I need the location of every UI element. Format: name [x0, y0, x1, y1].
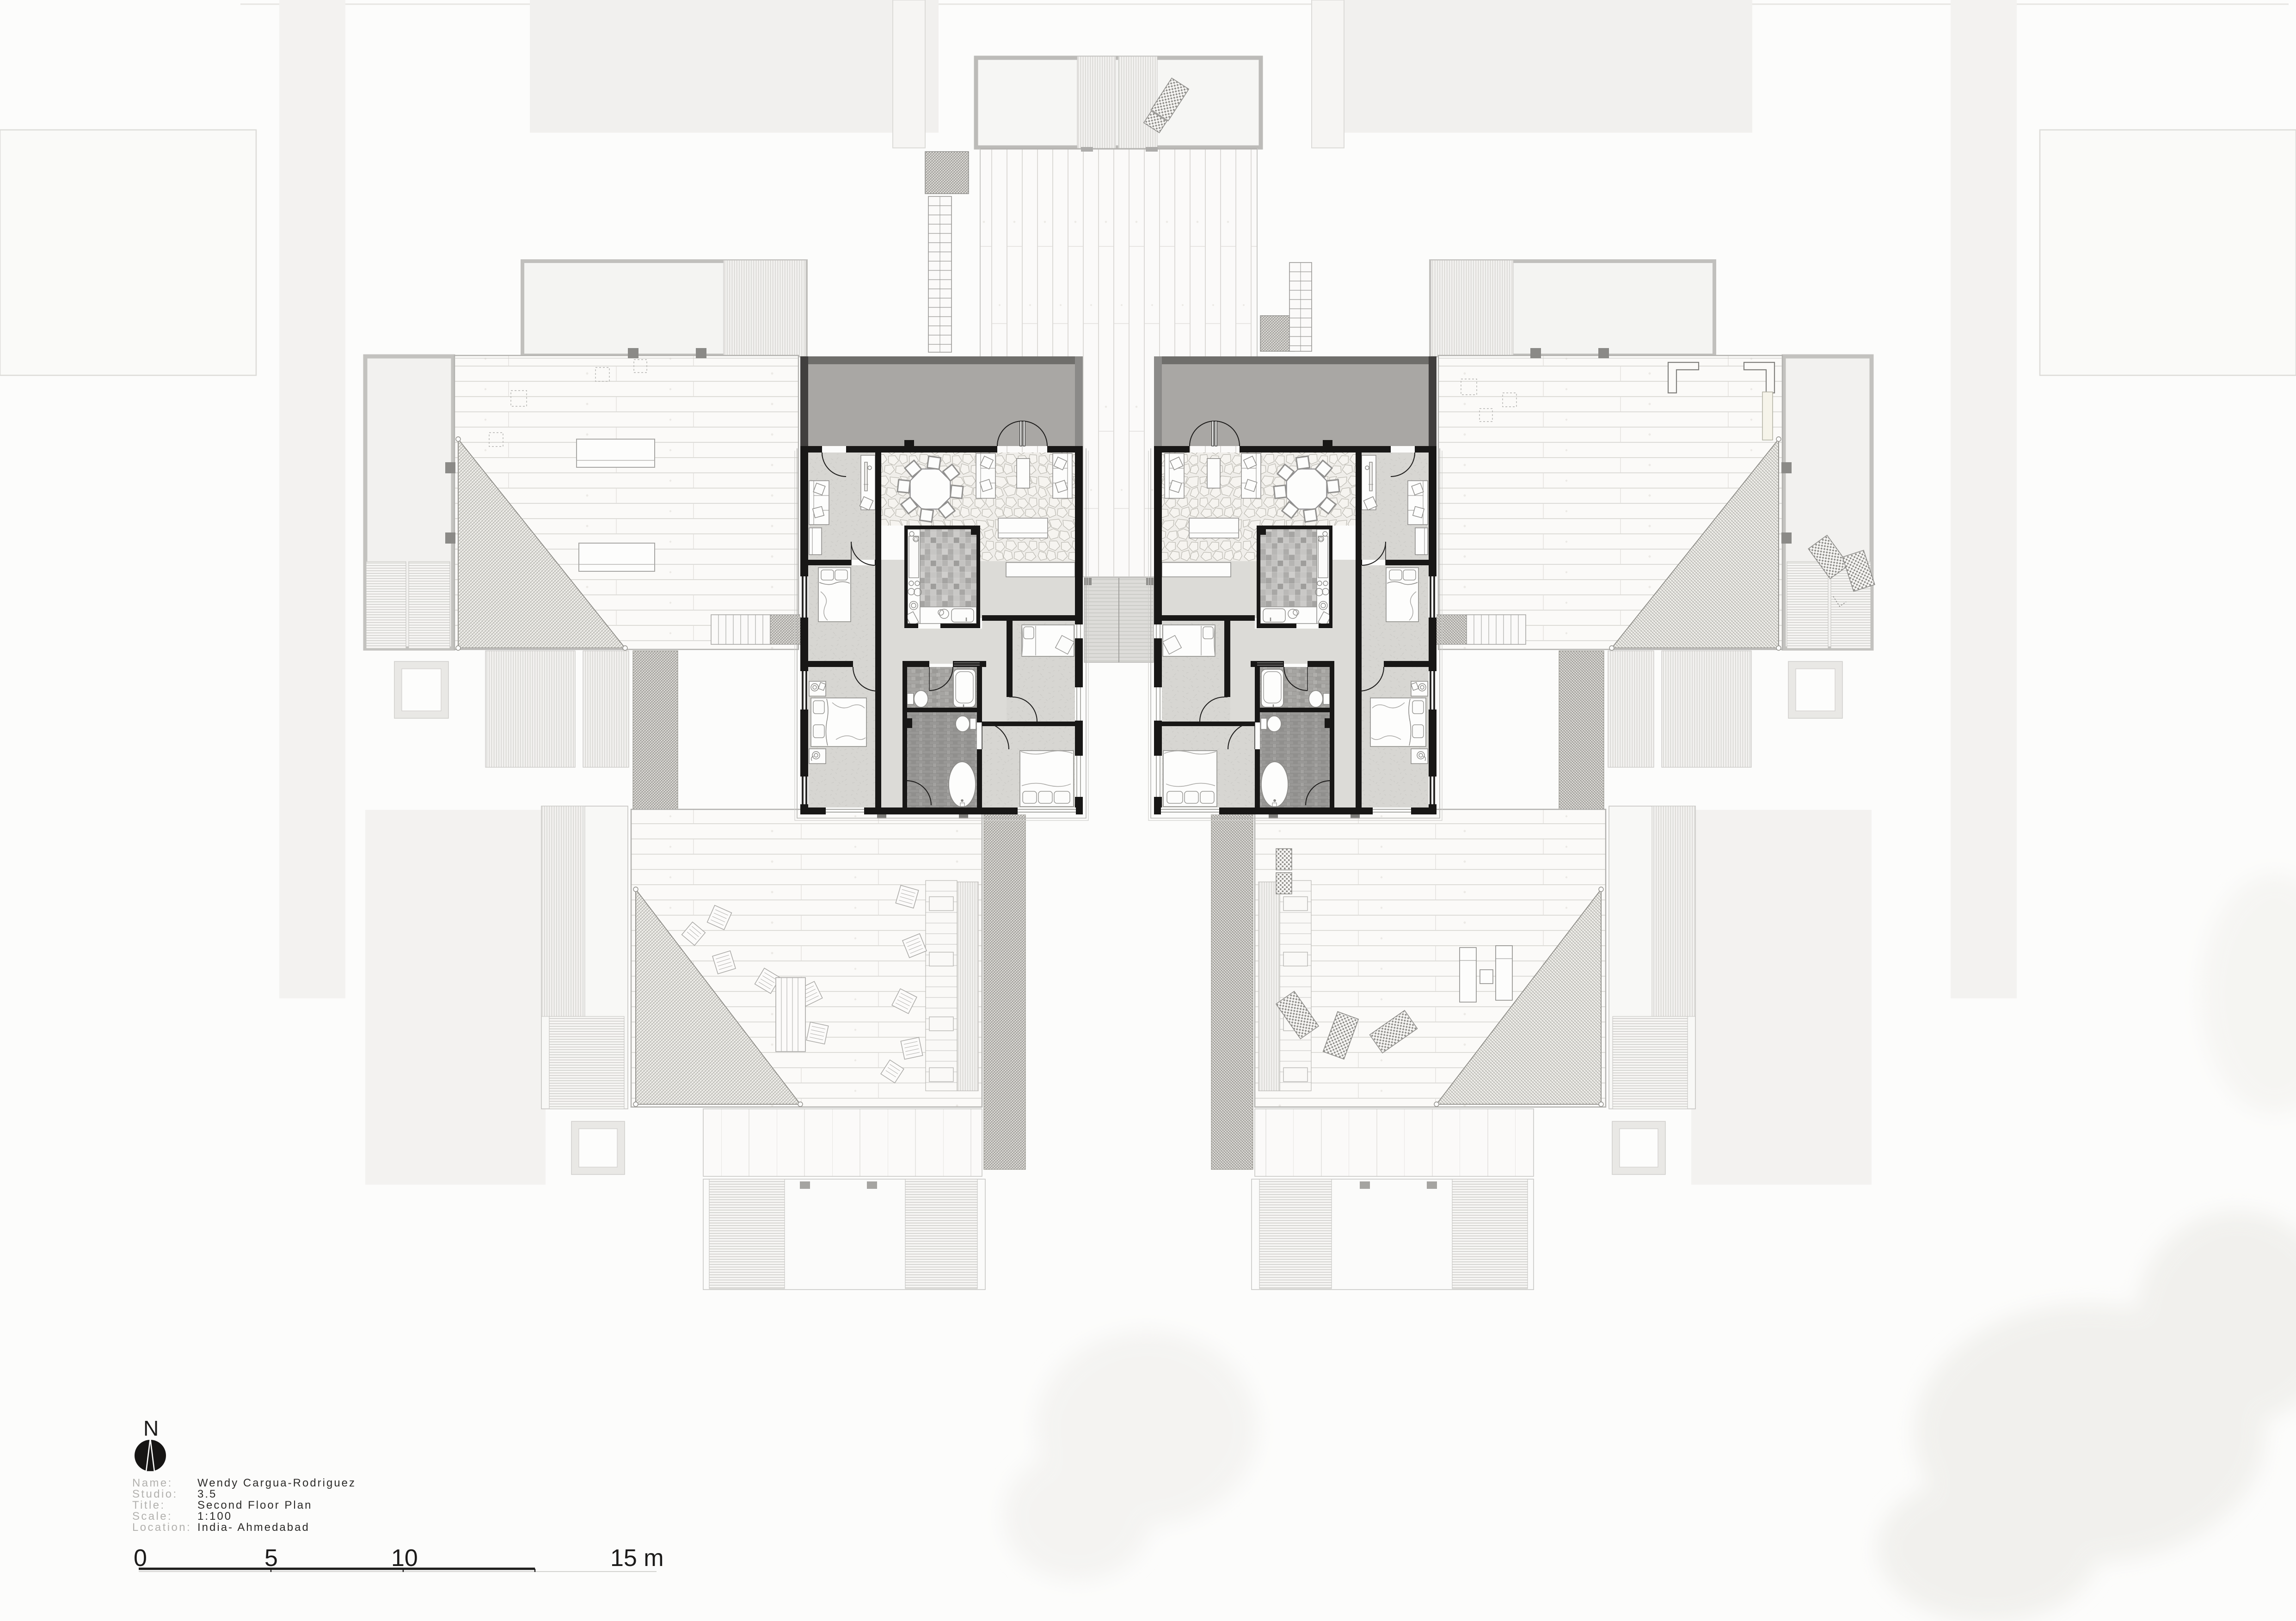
svg-text:Second Floor Plan: Second Floor Plan: [197, 1499, 312, 1511]
svg-text:Scale:: Scale:: [132, 1510, 172, 1523]
svg-text:1:100: 1:100: [197, 1510, 232, 1523]
svg-text:Wendy Cargua-Rodriguez: Wendy Cargua-Rodriguez: [197, 1477, 356, 1489]
svg-text:India- Ahmedabad: India- Ahmedabad: [197, 1521, 310, 1534]
svg-text:Name:: Name:: [132, 1477, 173, 1489]
svg-text:Location:: Location:: [132, 1521, 191, 1534]
svg-text:15 m: 15 m: [610, 1545, 664, 1572]
svg-text:0: 0: [134, 1545, 147, 1572]
svg-text:Title:: Title:: [132, 1499, 166, 1511]
svg-text:10: 10: [391, 1545, 418, 1572]
svg-text:5: 5: [264, 1545, 278, 1572]
svg-text:N: N: [143, 1416, 159, 1440]
svg-text:3.5: 3.5: [197, 1488, 217, 1500]
svg-text:Studio:: Studio:: [132, 1488, 178, 1500]
